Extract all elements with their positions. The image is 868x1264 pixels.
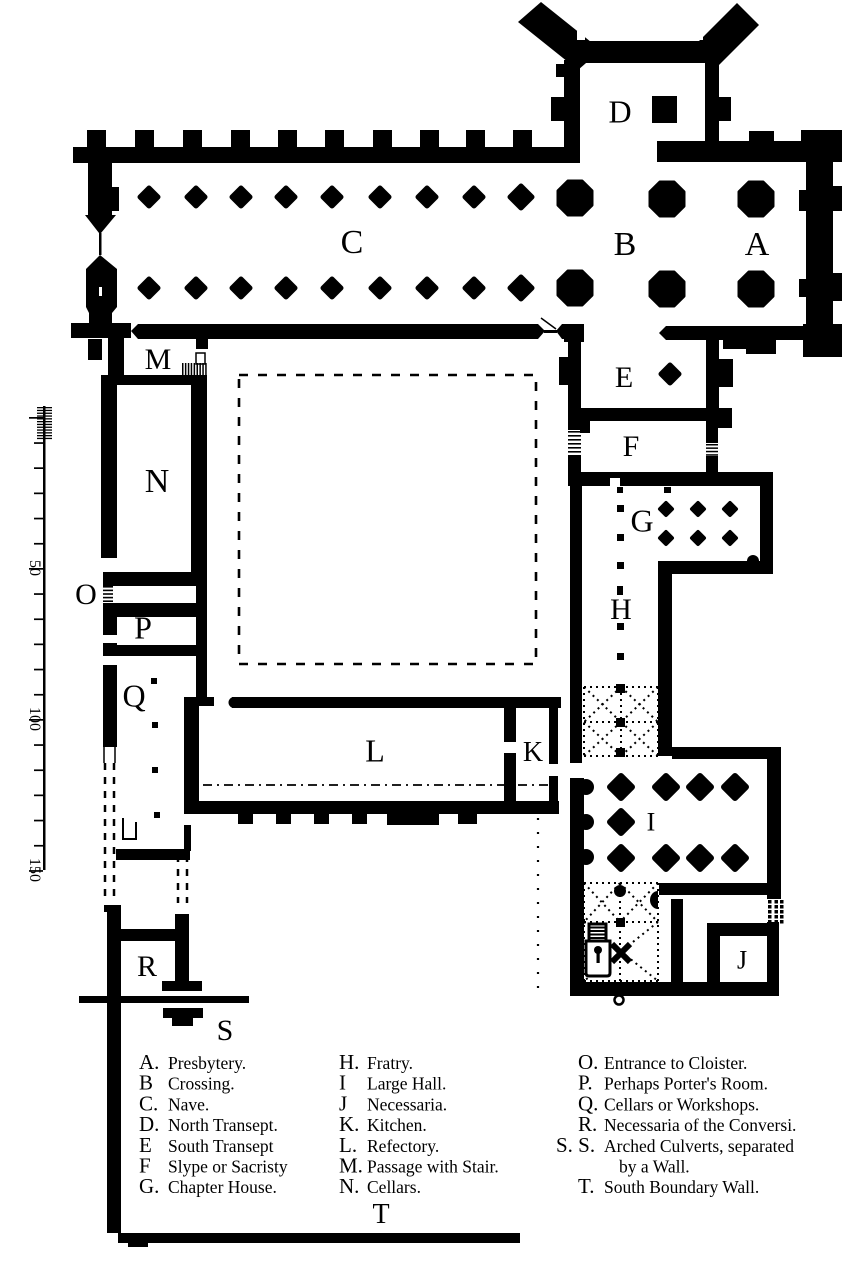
svg-text:South Transept: South Transept [168,1136,274,1156]
svg-text:Crossing.: Crossing. [168,1074,235,1094]
svg-text:D: D [608,94,631,130]
svg-text:by a Wall.: by a Wall. [619,1157,690,1177]
svg-text:P: P [134,610,152,646]
svg-text:B: B [614,226,637,263]
svg-text:Cellars.: Cellars. [367,1177,421,1197]
svg-text:C: C [341,224,364,261]
svg-text:Arched Culverts, separated: Arched Culverts, separated [604,1136,794,1156]
svg-text:Cellars or Workshops.: Cellars or Workshops. [604,1094,759,1114]
svg-text:A: A [745,226,770,263]
svg-text:Nave.: Nave. [168,1094,209,1114]
svg-text:M: M [145,343,172,376]
svg-text:S: S [217,1014,234,1047]
svg-text:Fratry.: Fratry. [367,1053,413,1073]
svg-text:Refectory.: Refectory. [367,1136,439,1156]
svg-text:Necessaria of the Conversi.: Necessaria of the Conversi. [604,1115,796,1135]
svg-text:O: O [75,578,97,611]
svg-text:S. S.: S. S. [556,1133,595,1157]
svg-text:South Boundary Wall.: South Boundary Wall. [604,1177,759,1197]
svg-text:H: H [610,593,632,626]
svg-text:Slype or Sacristy: Slype or Sacristy [168,1157,288,1177]
svg-text:Kitchen.: Kitchen. [367,1115,427,1135]
svg-text:Presbytery.: Presbytery. [168,1053,246,1073]
svg-text:Large Hall.: Large Hall. [367,1074,446,1094]
svg-text:F: F [623,430,640,463]
svg-text:E: E [615,361,633,394]
svg-text:Entrance to Cloister.: Entrance to Cloister. [604,1053,747,1073]
svg-text:G: G [630,503,653,539]
svg-text:T.: T. [578,1174,595,1198]
svg-text:Chapter House.: Chapter House. [168,1177,277,1197]
svg-text:T: T [372,1199,389,1230]
svg-text:J: J [737,945,747,974]
svg-text:150: 150 [26,858,43,882]
svg-text:I: I [647,807,656,836]
svg-text:G.: G. [139,1174,159,1198]
svg-text:Passage with Stair.: Passage with Stair. [367,1157,499,1177]
svg-text:Necessaria.: Necessaria. [367,1094,447,1114]
svg-text:Q: Q [122,678,145,714]
svg-text:N.: N. [339,1174,359,1198]
svg-text:R: R [137,950,157,983]
svg-text:100: 100 [26,707,43,731]
svg-text:K: K [523,737,543,768]
svg-text:L: L [365,733,385,769]
svg-text:North Transept.: North Transept. [168,1115,278,1135]
svg-text:50: 50 [26,560,43,576]
svg-text:N: N [145,463,170,500]
svg-text:Perhaps Porter's Room.: Perhaps Porter's Room. [604,1074,768,1094]
